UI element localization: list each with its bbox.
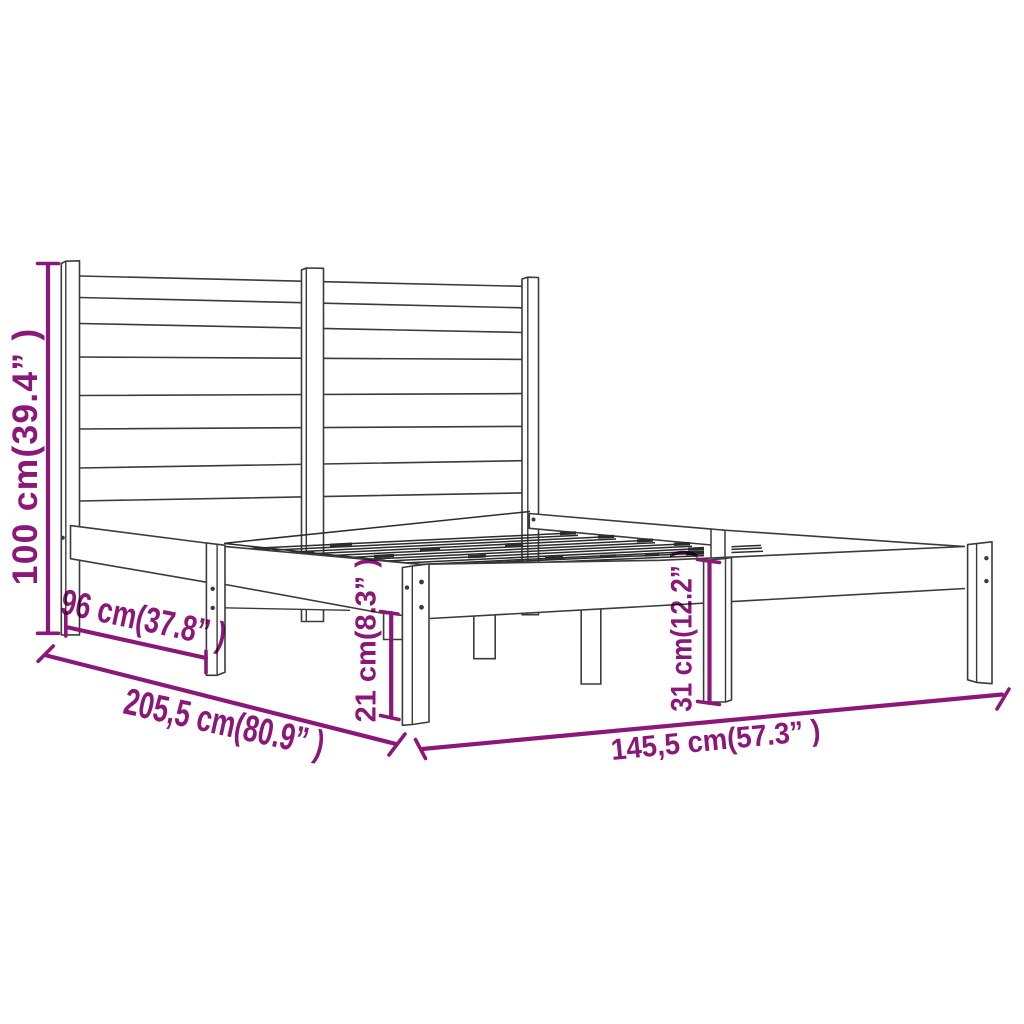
svg-text:100 cm(39.4” ): 100 cm(39.4” ) [5, 328, 45, 586]
svg-text:21 cm(8.3” ): 21 cm(8.3” ) [351, 558, 383, 722]
svg-text:31 cm(12.2” ): 31 cm(12.2” ) [665, 549, 698, 711]
